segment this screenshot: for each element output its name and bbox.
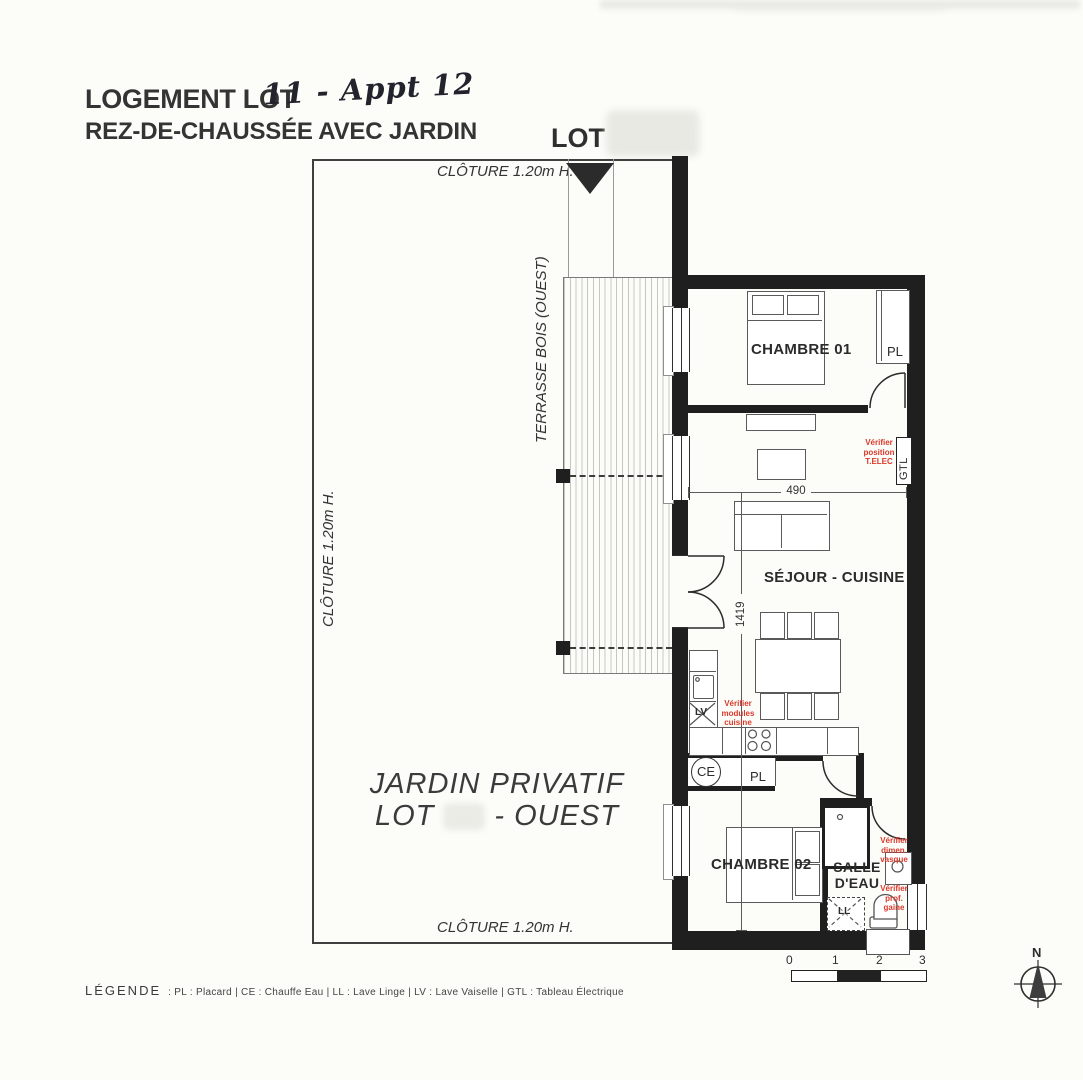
room-label-chambre02: CHAMBRE 02 — [711, 856, 812, 873]
dishwasher-label: LV — [695, 707, 707, 718]
door-arc-chambre01 — [870, 373, 905, 408]
door-arc-salle-eau — [872, 806, 905, 839]
legend-entries: : PL : Placard | CE : Chauffe Eau | LL :… — [168, 987, 624, 998]
burner — [762, 730, 770, 738]
north-label: N — [1032, 945, 1041, 960]
scale-segment — [792, 971, 837, 981]
door-arc-entrance-top — [688, 556, 724, 592]
annotation-cuisine: Vérifier modules cuisine — [716, 699, 760, 728]
plan-linework — [0, 0, 1083, 1080]
door-arc-hall — [823, 761, 858, 796]
shower-drain — [838, 815, 843, 820]
closet-label-pl: PL — [887, 344, 903, 359]
door-arc-entrance-bottom — [688, 592, 724, 628]
redaction-blur-garden — [443, 803, 485, 830]
room-label-chambre01: CHAMBRE 01 — [751, 341, 852, 358]
annotation-gaine: Vérifier prof. gaine — [872, 884, 916, 913]
scale-tick-3: 3 — [919, 953, 926, 967]
scale-tick-1: 1 — [832, 953, 839, 967]
garden-label-line1: JARDIN PRIVATIF — [347, 768, 647, 801]
room-label-sejour: SÉJOUR - CUISINE — [764, 569, 905, 586]
entry-arrow — [566, 163, 614, 194]
garden-lot-prefix: LOT — [375, 800, 434, 833]
burner — [762, 742, 771, 751]
scale-segment — [881, 971, 926, 981]
legend: LÉGENDE : PL : Placard | CE : Chauffe Ea… — [85, 983, 624, 998]
burner — [749, 730, 757, 738]
annotation-telec: Vérifier position T.ELEC — [857, 438, 901, 467]
annotation-vasque: Vérifier dimen. vasque — [872, 836, 916, 865]
scale-segment — [837, 971, 882, 981]
garden-lot-suffix: - OUEST — [494, 800, 619, 833]
burner — [748, 742, 757, 751]
scale-tick-2: 2 — [876, 953, 883, 967]
garden-label-line2: LOT - OUEST — [347, 800, 647, 833]
legend-title: LÉGENDE — [85, 983, 161, 998]
hall-closet-label: PL — [750, 769, 766, 784]
north-compass — [1014, 960, 1062, 1008]
washer-label: LL — [838, 906, 850, 917]
sink-faucet — [696, 678, 700, 682]
scale-tick-0: 0 — [786, 953, 793, 967]
scale-bar — [791, 970, 927, 982]
floorplan-scan: LOGEMENT LOT 11 - Appt 12 REZ-DE-CHAUSSÉ… — [0, 0, 1083, 1080]
